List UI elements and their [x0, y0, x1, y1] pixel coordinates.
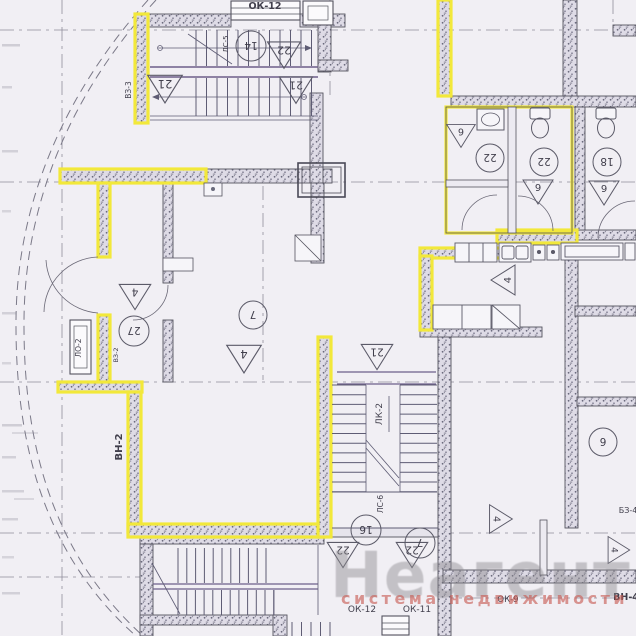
label-vn2: ВН-2: [114, 433, 125, 460]
svg-text:27: 27: [127, 324, 140, 336]
label-lo2: ЛО-2: [74, 338, 83, 357]
label-vz3: ВЗ-3: [124, 81, 133, 99]
svg-text:14: 14: [244, 39, 258, 51]
watermark-tagline: система недвижимости: [341, 589, 636, 608]
svg-text:4: 4: [503, 277, 514, 283]
scanned-floor-plan: 21 22 21 6 6 6 4 4 4 21: [0, 0, 636, 636]
label-ls6: ЛС-6: [376, 495, 385, 514]
label-ok12-top: ОК-12: [248, 1, 281, 12]
svg-text:18: 18: [600, 155, 613, 167]
svg-text:22: 22: [277, 43, 291, 56]
svg-text:6: 6: [601, 182, 607, 193]
label-ls5: ЛС-5: [222, 35, 230, 52]
svg-text:6: 6: [458, 125, 464, 136]
svg-text:7: 7: [250, 308, 257, 320]
wall-box-dot: [211, 187, 215, 191]
svg-text:4: 4: [240, 347, 247, 361]
svg-text:21: 21: [289, 78, 303, 91]
svg-text:4: 4: [490, 516, 501, 522]
svg-text:6: 6: [599, 435, 606, 447]
svg-text:22: 22: [537, 155, 550, 167]
svg-text:16: 16: [359, 523, 373, 535]
label-lk2: ЛК-2: [375, 403, 385, 425]
window-bottom: [382, 616, 409, 635]
label-vz2: ВЗ-2: [112, 347, 120, 362]
svg-text:22: 22: [483, 151, 496, 163]
label-bz4: БЗ-4: [619, 506, 636, 515]
svg-text:21: 21: [158, 77, 173, 91]
svg-text:6: 6: [535, 181, 541, 192]
window-small-top: [303, 1, 333, 25]
svg-text:4: 4: [131, 286, 138, 298]
washbasin-icon: [477, 109, 504, 130]
svg-text:21: 21: [370, 346, 383, 358]
